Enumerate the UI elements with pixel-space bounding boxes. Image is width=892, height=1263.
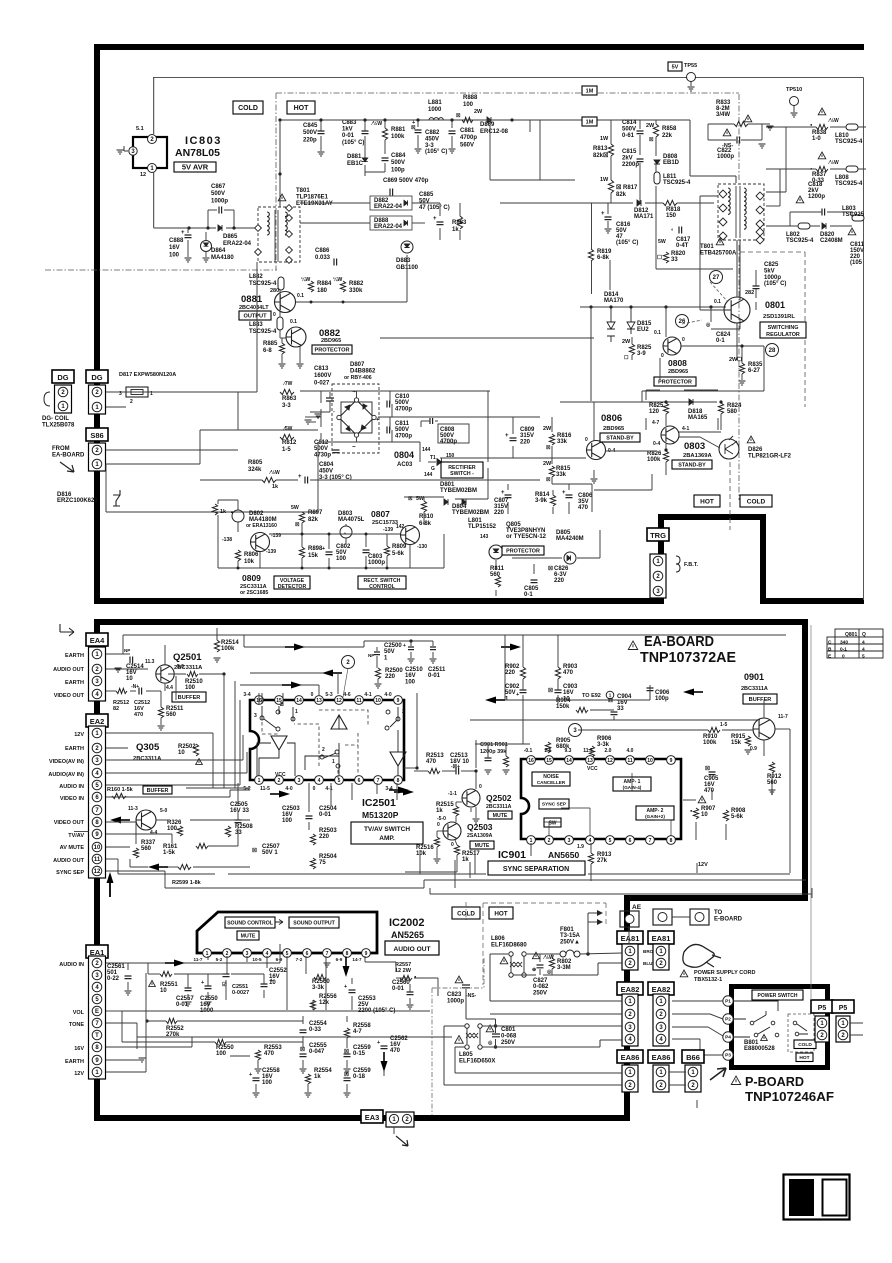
svg-text:D808EB1D: D808EB1D [663,154,680,166]
svg-text:TV/AV: TV/AV [68,833,84,839]
svg-text:Q: Q [862,632,866,638]
svg-text:or RBY-406: or RBY-406 [344,375,372,381]
svg-text:8: 8 [346,951,349,957]
svg-text:9: 9 [397,698,400,704]
svg-text:0.1: 0.1 [297,293,304,299]
svg-text:C: C [828,640,832,646]
svg-text:1200p 39k: 1200p 39k [480,749,507,755]
svg-text:4-1: 4-1 [325,786,332,792]
svg-text:2SA1309A: 2SA1309A [467,833,493,839]
svg-text:2BD965: 2BD965 [321,338,341,344]
svg-text:▲: ▲ [343,531,347,536]
svg-text:IC2501: IC2501 [362,797,396,809]
svg-text:or 2SC1685: or 2SC1685 [240,590,268,596]
svg-text:0: 0 [273,312,276,318]
svg-text:7: 7 [377,778,380,784]
svg-text:D881EB1C: D881EB1C [347,154,364,167]
svg-text:12: 12 [336,698,342,704]
svg-text:AUDIO OUT: AUDIO OUT [394,946,431,953]
svg-text:+: + [505,433,509,439]
svg-text:AC03: AC03 [397,462,413,468]
svg-text:0: 0 [479,784,482,790]
svg-text:+: + [562,490,566,496]
svg-text:HOT: HOT [700,498,714,505]
svg-text:VCC: VCC [275,772,286,778]
svg-text:POWER SUPPLY CORD: POWER SUPPLY CORD [694,970,755,976]
svg-text:-138: -138 [222,537,232,543]
svg-text:12: 12 [607,758,613,764]
svg-text:+: + [181,230,185,236]
svg-text:5: 5 [286,951,289,957]
svg-text:0801: 0801 [765,300,785,310]
svg-text:2W: 2W [543,426,552,432]
svg-text:AN5265: AN5265 [391,930,424,940]
svg-text:CONTROL: CONTROL [369,584,395,590]
svg-text:2SD1391RL: 2SD1391RL [763,314,795,320]
svg-text:4-1: 4-1 [682,426,689,432]
svg-text:7: 7 [326,951,329,957]
svg-text:AN78L05: AN78L05 [175,147,220,159]
svg-text:SYNC SEP: SYNC SEP [542,802,567,808]
svg-text:27: 27 [713,275,720,281]
svg-text:PROTECTOR: PROTECTOR [506,548,540,554]
svg-text:13: 13 [587,758,593,764]
svg-text:0809: 0809 [242,573,261,583]
svg-text:0: 0 [437,822,440,828]
svg-text:0803: 0803 [684,441,705,452]
svg-text:P3: P3 [725,1053,731,1059]
svg-text:R826100k: R826100k [647,451,662,463]
svg-text:C884500V100p: C884500V100p [391,153,406,173]
svg-text:142: 142 [396,524,405,530]
svg-text:5V: 5V [672,64,679,70]
svg-text:SOUND CONTROL: SOUND CONTROL [227,920,274,926]
svg-text:2.0: 2.0 [605,748,612,754]
svg-text:-1-1: -1-1 [448,791,457,797]
svg-text:0807: 0807 [371,509,390,519]
svg-text:☒: ☒ [705,765,710,772]
svg-text:AUDIO OUT: AUDIO OUT [53,858,85,864]
svg-text:2BD965: 2BD965 [603,426,625,432]
svg-text:2W: 2W [543,461,552,467]
svg-text:5-0: 5-0 [160,808,167,814]
svg-text:TBX5132-1: TBX5132-1 [694,977,722,983]
svg-text:TRG: TRG [650,531,666,540]
svg-text:11.3: 11.3 [145,659,155,665]
svg-text:1-5: 1-5 [720,722,727,728]
svg-text:11.5: 11.5 [583,748,593,754]
svg-text:2W: 2W [622,339,631,345]
svg-text:EARTH: EARTH [65,746,84,752]
svg-text:P2: P2 [725,1017,731,1023]
svg-text:0: 0 [682,337,685,343]
svg-text:NP: NP [124,648,130,653]
svg-text:10: 10 [647,758,653,764]
svg-text:11: 11 [356,698,362,704]
svg-text:14: 14 [296,698,302,704]
svg-text:1k: 1k [272,484,279,490]
svg-text:IC901: IC901 [498,849,526,861]
svg-text:3: 3 [298,778,301,784]
svg-text:BUFFER: BUFFER [178,695,201,701]
svg-text:0: 0 [311,692,314,698]
svg-text:R8023-3M: R8023-3M [557,959,572,971]
svg-text:C845500V220p: C845500V220p [303,123,318,143]
svg-text:5-2: 5-2 [216,957,223,962]
svg-text:+: + [270,978,273,984]
svg-text:MUTE: MUTE [475,843,490,849]
svg-text:5-3: 5-3 [325,692,332,698]
svg-text:6-9: 6-9 [276,957,283,962]
svg-text:P5: P5 [818,1005,827,1012]
svg-text:340: 340 [840,640,848,646]
svg-text:VIDEO OUT: VIDEO OUT [54,693,85,699]
svg-text:+: + [344,984,347,990]
svg-text:DG: DG [91,373,102,382]
svg-text:5: 5 [862,654,865,660]
svg-text:~: ~ [352,444,356,451]
svg-text:0-1: 0-1 [840,647,847,653]
svg-text:VIDEO IN: VIDEO IN [60,796,84,802]
svg-text:+: + [249,1072,252,1078]
svg-text:0806: 0806 [601,413,622,424]
svg-text:1k: 1k [220,509,227,515]
svg-text:12: 12 [94,869,101,875]
svg-text:S86: S86 [90,431,103,440]
svg-text:0: 0 [585,437,588,443]
svg-text:D817 EXPW580N120A: D817 EXPW580N120A [119,372,176,378]
svg-text:☒: ☒ [546,477,551,483]
svg-text:4: 4 [862,640,865,646]
svg-text:11-7: 11-7 [778,714,788,720]
svg-text:2: 2 [322,747,325,753]
svg-text:P5: P5 [839,1005,848,1012]
svg-text:+: + [433,216,437,222]
svg-text:5W: 5W [291,505,299,511]
svg-text:2W: 2W [474,109,483,115]
svg-text:EARTH: EARTH [65,653,84,659]
svg-text:EA-BOARD: EA-BOARD [644,633,714,650]
svg-text:AUDIO IN: AUDIO IN [59,962,84,968]
svg-text:C8270-082250V: C8270-082250V [533,978,549,996]
svg-text:C906100p: C906100p [655,690,670,702]
svg-text:EA86: EA86 [652,1053,671,1062]
svg-text:0881: 0881 [241,294,263,305]
svg-text:EA82: EA82 [652,985,671,994]
svg-text:14-7: 14-7 [352,957,362,962]
svg-text:-: - [333,409,335,415]
svg-text:POWER SWITCH: POWER SWITCH [758,993,798,999]
svg-text:C8860.033: C8860.033 [315,248,331,261]
svg-text:1: 1 [206,951,209,957]
svg-text:IC803: IC803 [185,135,222,147]
svg-text:28: 28 [769,348,776,354]
svg-text:SWITCH -: SWITCH - [450,471,474,477]
svg-text:◎: ◎ [706,322,711,328]
svg-text:(GAIN+2): (GAIN+2) [645,814,665,819]
svg-text:2BC3311A: 2BC3311A [133,756,162,762]
svg-text:0.1: 0.1 [290,319,297,325]
svg-text:12 2W: 12 2W [395,968,412,974]
svg-text:11-7: 11-7 [194,957,203,962]
svg-text:10-5: 10-5 [252,957,262,962]
svg-text:STAND-BY: STAND-BY [606,435,634,441]
svg-text:☒: ☒ [456,113,461,119]
svg-text:P1: P1 [725,999,731,1005]
svg-text:+: + [403,643,406,649]
svg-text:+: + [412,120,415,126]
svg-text:C250750V 1: C250750V 1 [262,844,280,856]
svg-text:-130: -130 [417,544,427,550]
svg-text:11: 11 [627,758,633,764]
svg-text:NP: NP [368,653,374,658]
svg-text:5V AVR: 5V AVR [182,163,209,172]
svg-text:IC2002: IC2002 [389,917,424,929]
svg-text:DETECTOR: DETECTOR [278,584,307,590]
svg-text:4: 4 [589,838,592,844]
svg-text:-139: -139 [383,527,393,533]
svg-text:EARTH: EARTH [65,680,84,686]
svg-text:8: 8 [397,778,400,784]
svg-text:2: 2 [226,951,229,957]
svg-text:4: 4 [266,951,269,957]
svg-text:9: 9 [365,951,368,957]
svg-text:AUDIO(AV IN): AUDIO(AV IN) [48,772,84,778]
svg-text:7-2: 7-2 [296,957,303,962]
svg-text:EA2: EA2 [90,717,105,726]
svg-text:T: T [95,1033,99,1039]
svg-text:-NS-: -NS- [466,993,477,999]
svg-text:0.1: 0.1 [654,330,661,336]
svg-text:0808: 0808 [668,358,687,368]
svg-text:TONE: TONE [69,1022,85,1028]
svg-text:DG: DG [57,373,68,382]
svg-text:C869 500V 470p: C869 500V 470p [383,178,429,184]
svg-text:~: ~ [352,389,356,396]
svg-text:2SC15733: 2SC15733 [372,520,398,526]
svg-text:R881100k: R881100k [391,127,406,140]
svg-text:AUDIO OUT: AUDIO OUT [53,667,85,673]
svg-text:4-6: 4-6 [343,692,350,698]
svg-text:12V: 12V [74,732,84,738]
svg-text:3-4: 3-4 [385,786,392,792]
svg-text:REGULATOR: REGULATOR [766,332,800,338]
svg-text:TP510: TP510 [786,87,802,93]
svg-text:1: 1 [258,778,261,784]
svg-text:Q2502: Q2502 [486,793,512,803]
svg-text:☒: ☒ [548,687,553,694]
svg-text:☐: ☐ [737,356,742,363]
svg-text:◐: ◐ [671,227,674,233]
svg-text:☒: ☒ [300,1046,305,1053]
svg-text:◎: ◎ [488,1040,493,1046]
svg-text:PROTECTOR: PROTECTOR [314,348,349,354]
svg-text:5.0: 5.0 [177,664,184,670]
svg-text:0-0027: 0-0027 [232,990,249,996]
svg-text:VCC: VCC [587,766,598,772]
svg-text:82: 82 [113,706,119,712]
svg-text:11: 11 [94,857,101,863]
svg-text:VIDEO(AV IN): VIDEO(AV IN) [49,759,84,765]
svg-text:☒: ☒ [608,697,613,704]
svg-text:1: 1 [530,838,533,844]
svg-text:0804: 0804 [394,450,414,460]
svg-text:4-7: 4-7 [652,420,659,426]
svg-text:6: 6 [306,951,309,957]
svg-text:AE: AE [632,904,642,911]
svg-text:2BD965: 2BD965 [668,369,688,375]
svg-text:COLD: COLD [798,1042,812,1048]
svg-text:14: 14 [566,758,572,764]
svg-text:R805324k: R805324k [248,460,263,473]
svg-text:+: + [201,980,204,986]
svg-text:▲: ▲ [230,509,234,514]
svg-text:HOT: HOT [494,910,507,917]
svg-text:-0.1: -0.1 [524,748,533,754]
svg-text:4-1: 4-1 [364,692,371,698]
svg-text:1.9: 1.9 [577,844,584,850]
svg-text:6-9: 6-9 [336,957,343,962]
svg-text:HOT: HOT [799,1055,809,1061]
svg-text:VIDEO OUT: VIDEO OUT [54,820,85,826]
svg-text:VOL: VOL [73,1010,85,1016]
svg-text:0: 0 [842,654,845,660]
svg-text:+: + [376,417,379,423]
svg-text:AV MUTE: AV MUTE [60,845,85,851]
svg-text:BUFFER: BUFFER [147,788,169,794]
svg-text:+: + [501,490,505,496]
svg-text:+: + [298,474,302,480]
svg-text:⁄½W: ⁄½W [371,120,382,127]
svg-text:L8811000: L8811000 [428,100,442,113]
svg-text:Q2501: Q2501 [173,652,202,663]
svg-text:2.5: 2.5 [545,748,552,754]
svg-text:9.3: 9.3 [565,748,572,754]
svg-text:12V: 12V [698,862,708,868]
svg-text:☒: ☒ [344,1071,349,1078]
svg-text:☒: ☒ [295,522,300,528]
svg-text:STAND-BY: STAND-BY [678,462,706,468]
svg-text:Q801: Q801 [845,632,857,638]
svg-text:AMP.: AMP. [379,835,395,842]
svg-text:☒: ☒ [548,565,553,572]
svg-text:-139: -139 [266,549,276,555]
svg-text:282: 282 [745,290,754,296]
svg-text:Q305: Q305 [136,742,160,753]
svg-text:+: + [322,546,325,552]
svg-text:SWITCHING: SWITCHING [768,325,799,331]
svg-text:PROTECTOR: PROTECTOR [658,379,692,385]
svg-text:470: 470 [134,712,143,718]
svg-text:2: 2 [402,709,405,715]
svg-text:☒: ☒ [252,847,257,854]
svg-text:8: 8 [670,838,673,844]
svg-text:10: 10 [375,698,381,704]
svg-text:0: 0 [313,786,316,792]
svg-text:TNP107246AF: TNP107246AF [745,1089,834,1104]
svg-text:4-0: 4-0 [384,692,391,698]
svg-text:EA82: EA82 [621,985,640,994]
svg-text:0: 0 [451,842,454,848]
svg-text:11-3: 11-3 [128,806,138,812]
svg-text:1W: 1W [600,136,609,142]
svg-text:5: 5 [338,778,341,784]
svg-text:TV/AV SWITCH: TV/AV SWITCH [364,826,410,833]
svg-text:CANCELLER: CANCELLER [537,780,566,785]
svg-text:EA4: EA4 [90,636,105,645]
svg-text:5-2: 5-2 [243,786,250,792]
svg-text:16: 16 [528,758,534,764]
svg-text:T1: T1 [430,455,436,461]
svg-text:2: 2 [278,778,281,784]
svg-text:6: 6 [629,838,632,844]
svg-text:R882330k: R882330k [349,281,364,294]
svg-text:P-BOARD: P-BOARD [745,1074,804,1089]
svg-text:⁄½W: ⁄½W [269,469,280,476]
svg-text:B: B [828,647,832,653]
svg-text:13: 13 [316,698,322,704]
svg-text:1: 1 [295,709,298,715]
svg-text:B66: B66 [686,1053,700,1062]
svg-text:☒: ☒ [649,137,654,143]
svg-text:EA81: EA81 [621,934,640,943]
svg-text:MUTE: MUTE [493,813,508,819]
svg-text:Q2503: Q2503 [467,822,493,832]
svg-text:OUTPUT: OUTPUT [244,314,268,320]
svg-text:12V: 12V [74,1071,84,1077]
svg-text:143: 143 [480,534,489,540]
svg-text:6: 6 [358,778,361,784]
svg-text:10: 10 [94,845,101,851]
svg-text:+: + [601,211,605,217]
svg-text:TP55: TP55 [684,63,697,69]
svg-text:+: + [516,692,519,698]
svg-text:AN5650: AN5650 [548,850,579,860]
svg-text:3: 3 [254,713,257,719]
svg-text:M51320P: M51320P [362,810,399,820]
svg-text:E: E [95,1009,99,1015]
svg-text:EARTH: EARTH [65,1059,84,1065]
svg-text:F.B.T.: F.B.T. [684,562,699,568]
svg-text:1M: 1M [586,119,594,125]
svg-text:4-0: 4-0 [285,786,292,792]
svg-text:4.0: 4.0 [627,748,634,754]
svg-text:C8010-068250V: C8010-068250V [501,1027,517,1046]
svg-text:1M: 1M [586,88,594,94]
svg-text:⁄½W: ⁄½W [828,117,839,124]
svg-text:0.9: 0.9 [750,746,757,752]
svg-text:R8338-2M3/4W: R8338-2M3/4W [716,100,731,118]
svg-text:EA86: EA86 [621,1053,640,1062]
svg-text:2BC3311A: 2BC3311A [741,686,768,692]
svg-text:1: 1 [332,759,335,765]
svg-text:144: 144 [422,447,431,453]
svg-text:or ERA13160: or ERA13160 [246,523,277,529]
svg-text:R910100k: R910100k [703,734,718,746]
svg-text:COLD: COLD [238,105,258,112]
svg-text:⁄5W: ⁄5W [283,426,293,432]
svg-text:SOUND OUTPUT: SOUND OUTPUT [293,920,335,926]
svg-text:0901: 0901 [744,672,764,682]
svg-text:+: + [377,1040,380,1046]
svg-text:4.4: 4.4 [166,685,173,691]
svg-text:TNP107372AE: TNP107372AE [640,649,736,666]
svg-text:15: 15 [546,758,552,764]
svg-text:144: 144 [424,472,433,478]
svg-text:0: 0 [661,353,664,359]
svg-text:⁄½W: ⁄½W [828,159,839,166]
svg-text:2: 2 [548,838,551,844]
